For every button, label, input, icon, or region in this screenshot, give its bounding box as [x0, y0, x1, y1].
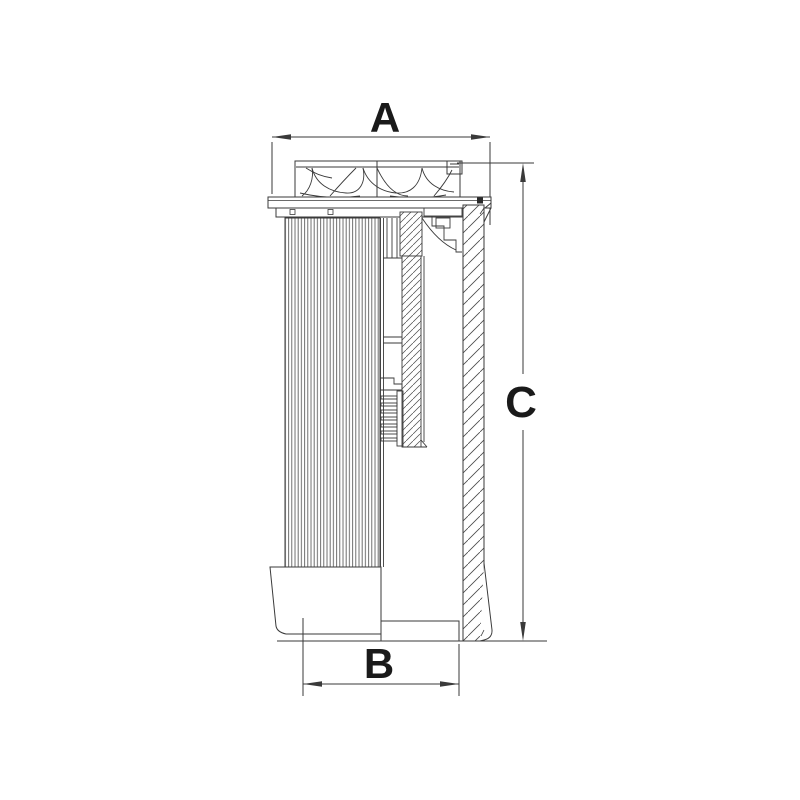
dimension-c-arrow-top — [520, 163, 526, 182]
outer-shell — [463, 205, 492, 641]
head-bell-curve — [422, 218, 456, 250]
head-tube-top — [400, 212, 422, 256]
dimension-a-label: A — [370, 94, 400, 141]
filter-cross-section-drawing: A — [0, 0, 800, 800]
center-tube — [402, 256, 421, 447]
dimension-b-arrow-left — [303, 681, 322, 687]
top-flange — [268, 197, 491, 217]
dimension-a-arrow-left — [272, 134, 291, 140]
dimension-b-arrow-right — [440, 681, 459, 687]
top-cap-grip — [295, 161, 462, 198]
drawing-canvas: A — [0, 0, 800, 800]
bottom-end-cap — [270, 567, 547, 641]
shell-wall — [463, 205, 484, 641]
inner-core-assembly — [380, 208, 463, 567]
dimension-a-arrow-right — [471, 134, 490, 140]
dimension-c-label: C — [505, 378, 537, 427]
head-bracket — [432, 216, 462, 252]
pleated-media — [285, 218, 380, 567]
dimension-c-arrow-bottom — [520, 622, 526, 641]
dimension-b-label: B — [364, 640, 394, 687]
bottom-inner-step — [381, 621, 459, 641]
seal-ring — [477, 198, 483, 204]
